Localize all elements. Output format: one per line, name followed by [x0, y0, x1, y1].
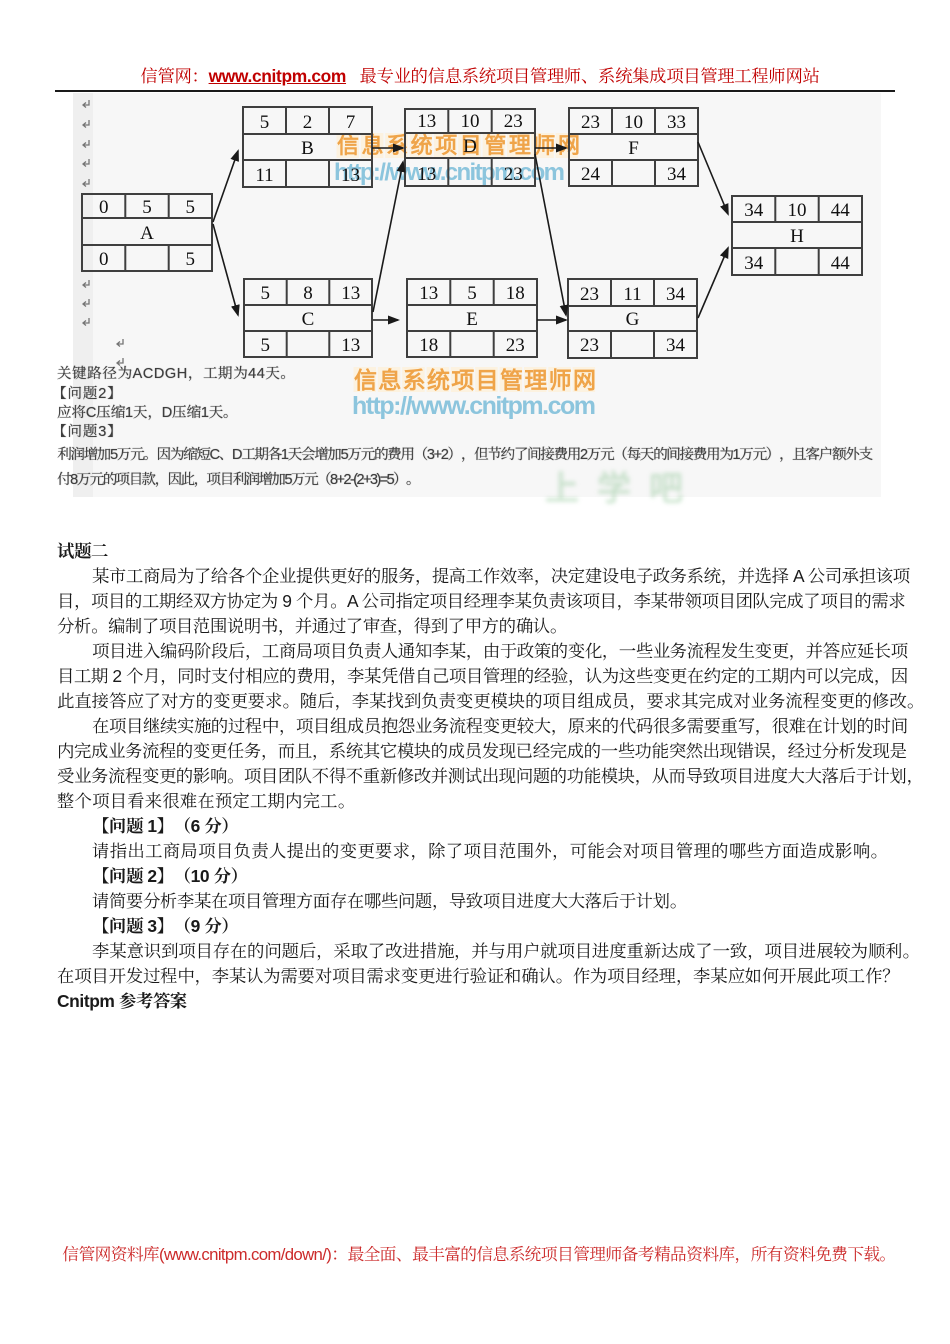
svg-text:13: 13 — [417, 111, 436, 132]
svg-text:5: 5 — [186, 249, 196, 270]
svg-text:34: 34 — [744, 200, 764, 221]
svg-text:D: D — [463, 136, 477, 157]
svg-text:5: 5 — [467, 283, 477, 304]
svg-text:44: 44 — [831, 253, 851, 274]
svg-text:13: 13 — [341, 165, 360, 186]
svg-text:B: B — [301, 138, 314, 159]
svg-text:信息系统项目管理师网: 信息系统项目管理师网 — [354, 367, 596, 393]
svg-text:11: 11 — [623, 284, 641, 305]
svg-text:23: 23 — [581, 112, 600, 133]
svg-text:34: 34 — [667, 164, 687, 185]
svg-text:A: A — [140, 223, 154, 244]
svg-text:13: 13 — [341, 283, 360, 304]
svg-text:33: 33 — [667, 112, 686, 133]
svg-text:10: 10 — [624, 112, 643, 133]
svg-text:44: 44 — [831, 200, 851, 221]
svg-text:5: 5 — [261, 335, 271, 356]
svg-text:7: 7 — [346, 112, 356, 133]
svg-text:5: 5 — [260, 112, 270, 133]
svg-text:5: 5 — [142, 197, 152, 218]
svg-text:23: 23 — [504, 164, 523, 185]
svg-text:11: 11 — [255, 165, 273, 186]
svg-text:2: 2 — [303, 112, 313, 133]
svg-text:E: E — [466, 309, 478, 330]
svg-text:13: 13 — [419, 283, 438, 304]
svg-text:8: 8 — [303, 283, 313, 304]
svg-text:http://www.cnitpm.com: http://www.cnitpm.com — [334, 159, 565, 186]
svg-text:13: 13 — [341, 335, 360, 356]
svg-text:0: 0 — [99, 249, 109, 270]
svg-text:13: 13 — [417, 164, 436, 185]
svg-text:0: 0 — [99, 197, 109, 218]
svg-text:10: 10 — [461, 111, 480, 132]
svg-text:18: 18 — [506, 283, 525, 304]
svg-text:23: 23 — [580, 335, 599, 356]
svg-text:34: 34 — [744, 253, 764, 274]
svg-text:5: 5 — [261, 283, 271, 304]
svg-text:34: 34 — [666, 335, 686, 356]
svg-text:10: 10 — [788, 200, 807, 221]
svg-text:5: 5 — [186, 197, 196, 218]
svg-text:G: G — [626, 309, 640, 330]
svg-text:34: 34 — [666, 284, 686, 305]
svg-text:23: 23 — [504, 111, 523, 132]
svg-text:24: 24 — [581, 164, 601, 185]
svg-text:H: H — [790, 226, 804, 247]
svg-text:23: 23 — [580, 284, 599, 305]
svg-text:http://www.cnitpm.com: http://www.cnitpm.com — [352, 392, 596, 420]
svg-text:18: 18 — [419, 335, 438, 356]
svg-text:C: C — [302, 309, 315, 330]
svg-text:F: F — [628, 138, 639, 159]
svg-text:23: 23 — [506, 335, 525, 356]
svg-text:上学吧: 上学吧 — [545, 469, 701, 508]
